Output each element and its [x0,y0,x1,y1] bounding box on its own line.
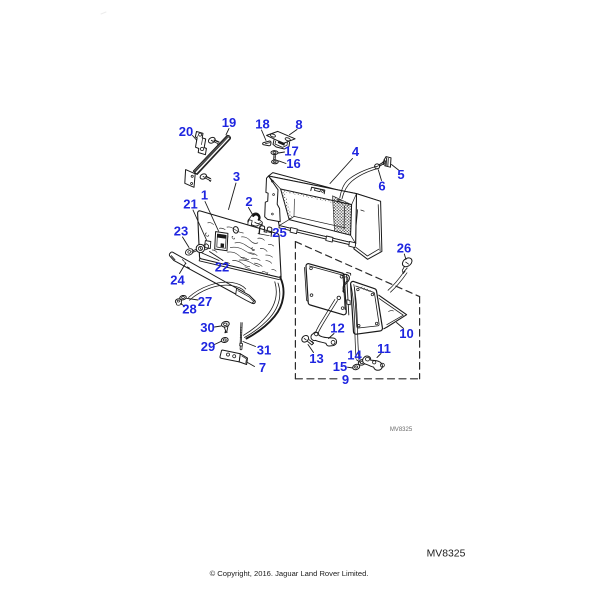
svg-text:26: 26 [397,241,411,256]
svg-text:14: 14 [347,348,362,363]
svg-text:24: 24 [170,273,185,288]
svg-text:4: 4 [352,144,360,159]
svg-text:30: 30 [200,320,214,335]
svg-text:13: 13 [309,351,323,366]
svg-text:15: 15 [333,359,347,374]
svg-text:31: 31 [257,343,271,358]
svg-text:10: 10 [399,326,413,341]
svg-text:2: 2 [245,194,252,209]
svg-text:© Copyright, 2016. Jaguar Land: © Copyright, 2016. Jaguar Land Rover Lim… [210,569,369,578]
svg-text:25: 25 [272,225,286,240]
svg-text:29: 29 [201,339,215,354]
svg-text:3: 3 [233,169,240,184]
svg-text:11: 11 [377,341,391,356]
svg-text:27: 27 [198,294,212,309]
svg-text:MV8325: MV8325 [390,427,413,433]
svg-text:21: 21 [183,197,197,212]
svg-text:28: 28 [182,302,196,317]
svg-text:18: 18 [255,117,269,132]
svg-text:7: 7 [259,360,266,375]
svg-text:19: 19 [222,115,236,130]
svg-text:22: 22 [215,260,229,275]
svg-text:12: 12 [330,321,344,336]
svg-text:6: 6 [378,179,385,194]
svg-text:23: 23 [174,224,188,239]
svg-text:8: 8 [295,117,302,132]
svg-text:1: 1 [201,188,208,203]
svg-text:9: 9 [342,372,349,387]
svg-text:5: 5 [397,167,404,182]
svg-text:17: 17 [284,144,298,159]
svg-text:20: 20 [179,124,193,139]
svg-text:MV8325: MV8325 [427,549,466,560]
